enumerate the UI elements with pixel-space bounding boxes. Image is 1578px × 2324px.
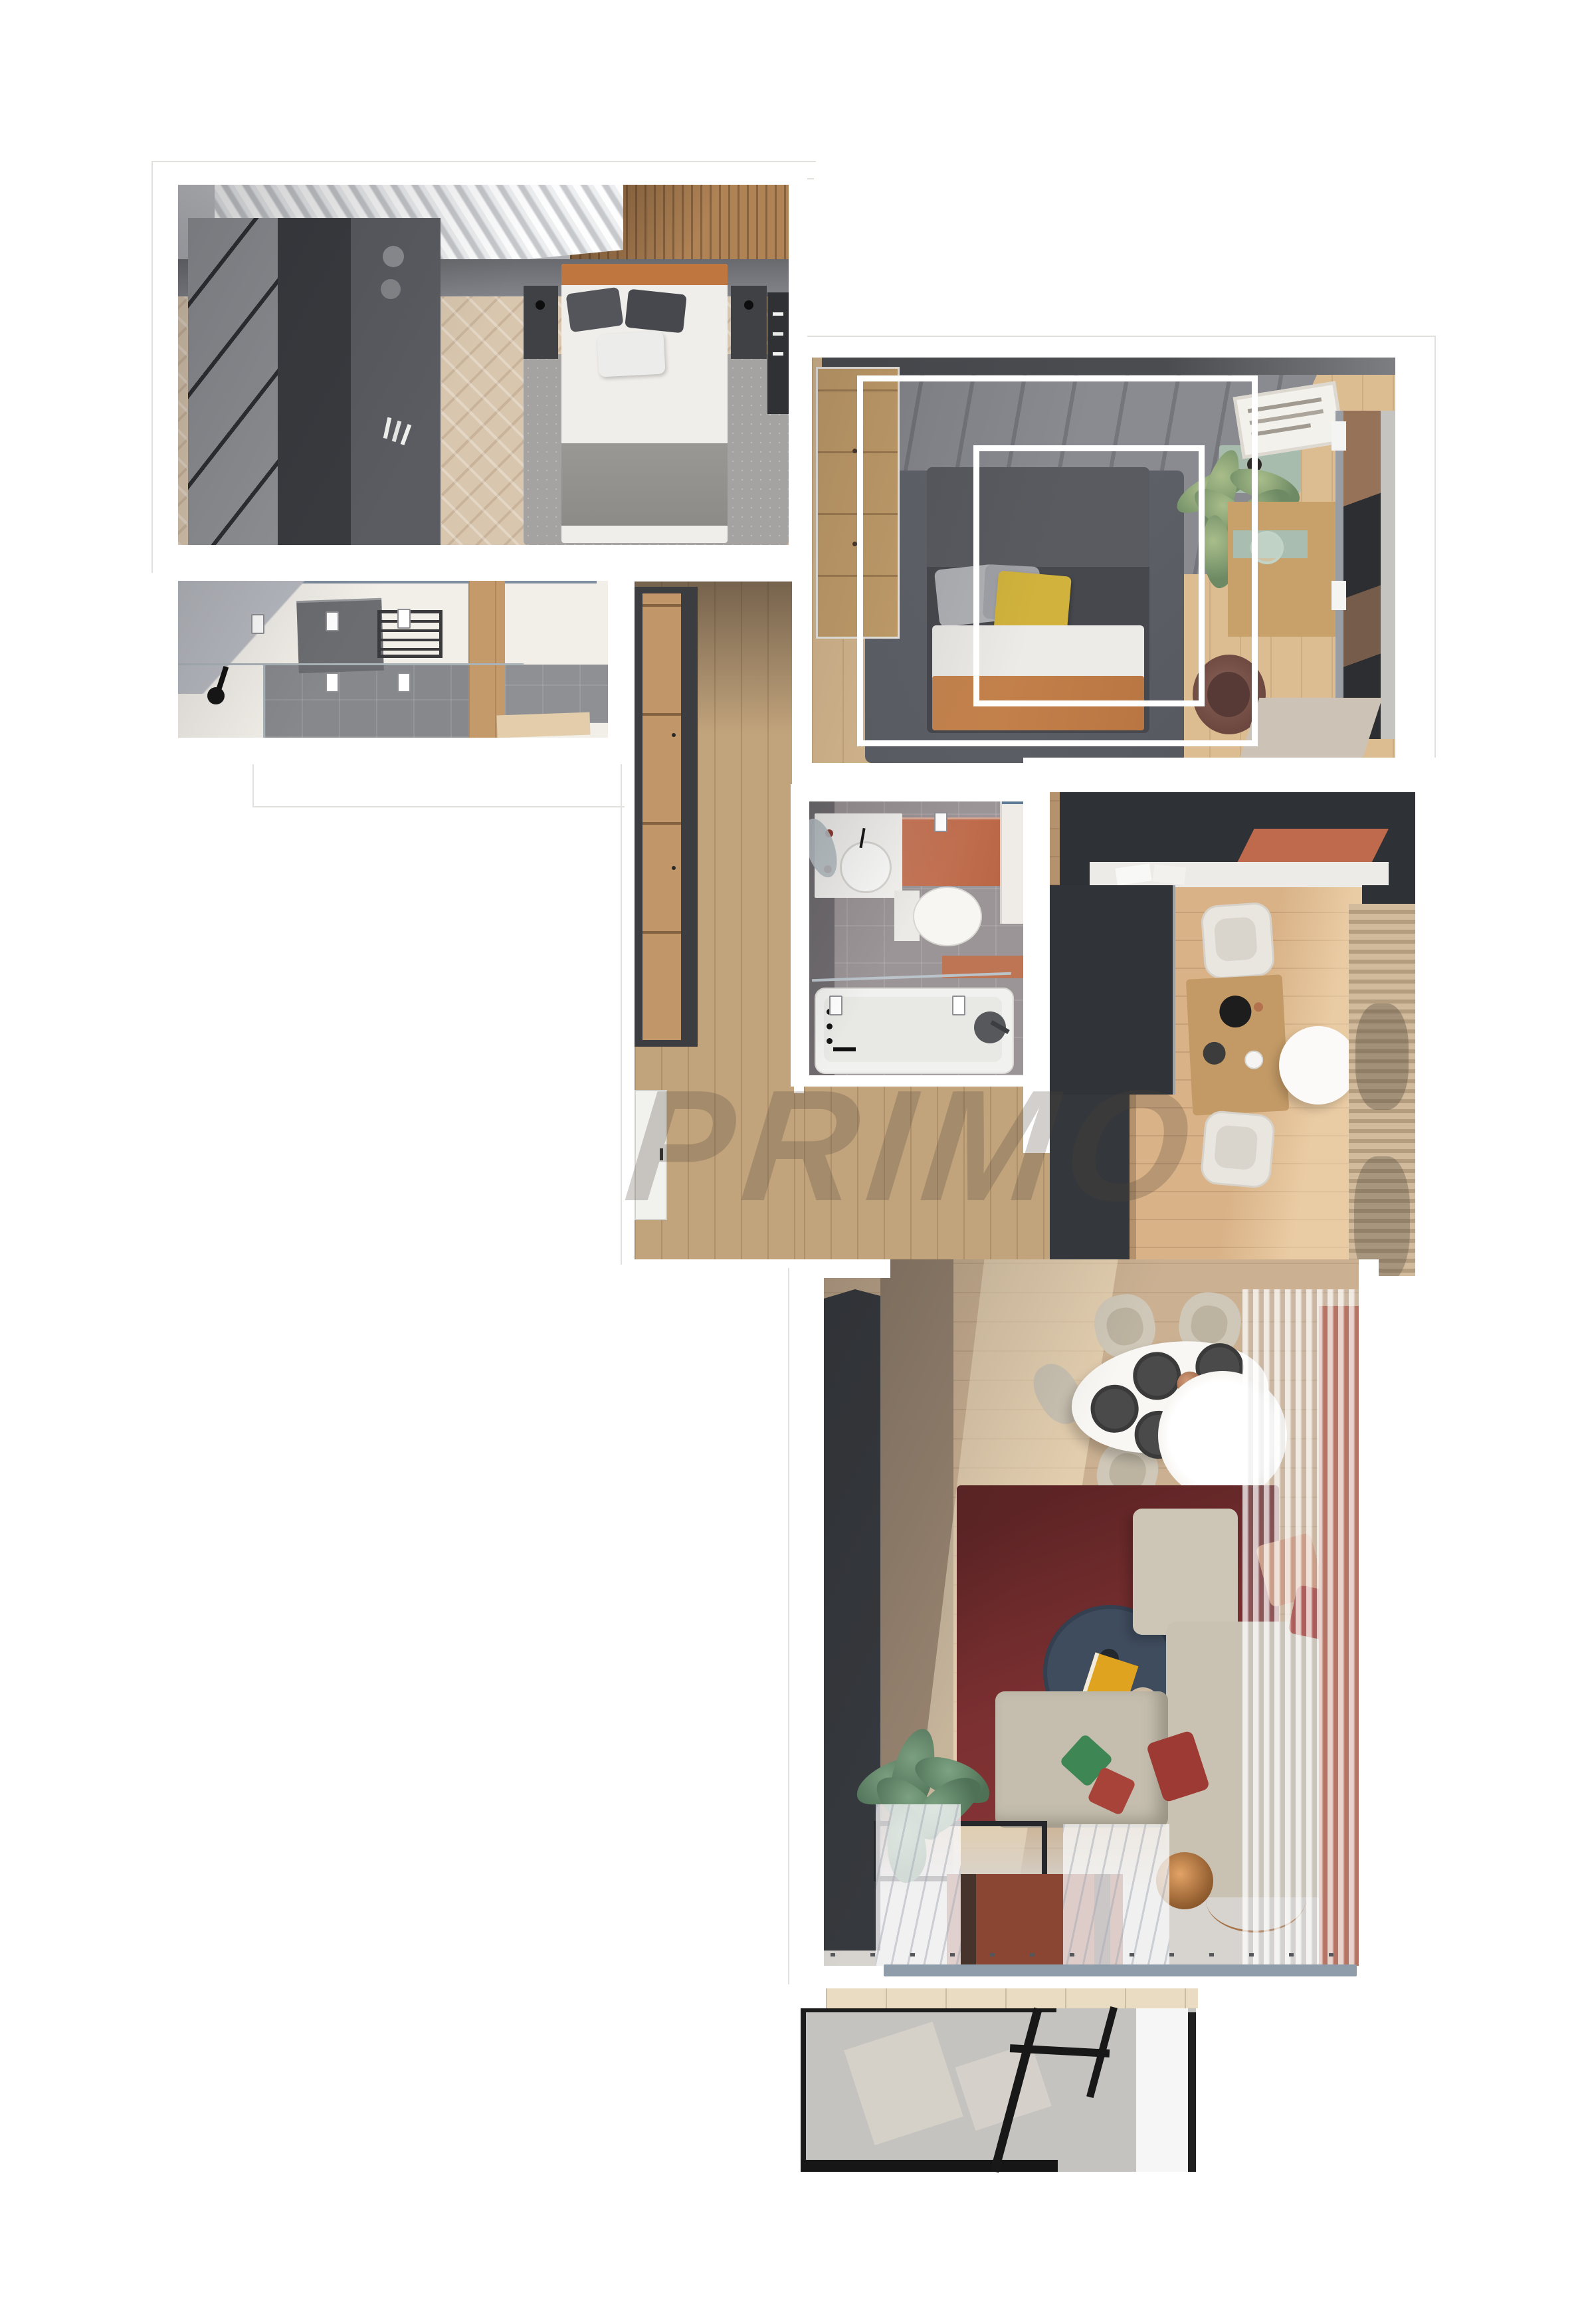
bed-1-pillow-white [597, 331, 665, 377]
black-bowl [1219, 995, 1252, 1028]
chair-seat [1104, 1305, 1146, 1348]
plan-outline-right-upper [1434, 336, 1436, 768]
curtain-hook-row [1130, 1953, 1355, 1956]
hall-extension-floor [804, 1087, 1050, 1276]
balcony-frame-right [1188, 2012, 1196, 2172]
bedroom-1-floor [178, 185, 789, 545]
window-sill [1381, 411, 1395, 739]
plan-outline-bedroom2-top [788, 336, 1436, 337]
dark-plate [1203, 1041, 1227, 1065]
shelf-books [401, 424, 412, 445]
window-glass-dark [1343, 411, 1381, 739]
wardrobe-shelf-column [351, 218, 441, 545]
desk-book [773, 352, 783, 356]
balcony-white-gap [1136, 2008, 1188, 2172]
plan-outline-step-v [252, 764, 254, 807]
ensuite-floor-marble [178, 581, 608, 738]
balcony-furniture-ghost [955, 2043, 1051, 2131]
balcony-frame-bottom [801, 2160, 1058, 2172]
door-handle [660, 1148, 663, 1160]
chair-seat [1214, 1124, 1258, 1170]
chair-seat [1188, 1303, 1230, 1346]
desk-with-books [767, 292, 789, 414]
plan-outline-living-left [788, 1268, 789, 1984]
window-mullion [1331, 581, 1346, 610]
wardrobe-closet [188, 218, 441, 545]
balcony-furniture-ghost [844, 2022, 963, 2145]
sofa-chaise [1133, 1509, 1238, 1635]
wardrobe-knob [852, 449, 857, 453]
bed-1-pillow-dark [625, 289, 687, 334]
bedroom-1 [159, 166, 807, 572]
cutting-board [1153, 865, 1186, 885]
living-room-floor [824, 1259, 1359, 1966]
kitchen-dining-table [1186, 974, 1290, 1115]
dark-plate [1088, 1382, 1141, 1435]
wardrobe-charcoal-panel [278, 218, 351, 545]
hall-extension-wall-stub [1023, 1087, 1050, 1153]
floor-plan-canvas: PRIMO [0, 0, 1578, 2324]
shelf-item-round [381, 279, 401, 299]
copper-deco [1254, 1002, 1264, 1012]
bed-1-headboard [561, 264, 728, 285]
bedroom-2 [792, 342, 1419, 784]
window-sill-bar [884, 1964, 1357, 1976]
plan-outline-corridor-left [621, 763, 622, 1265]
chair-seat [1214, 916, 1258, 962]
kitchen-floor [1050, 792, 1415, 1276]
living-room [804, 1259, 1379, 1987]
cutting-board [1115, 864, 1151, 886]
kitchen-counter-left [1050, 885, 1175, 1095]
white-frame-overlay-inner [973, 445, 1205, 706]
window-mullion [1331, 421, 1346, 451]
white-cup [1244, 1050, 1263, 1069]
rug-band [960, 1874, 976, 1966]
shelf-books [392, 421, 402, 442]
bedroom-2-lintel [822, 358, 1395, 375]
shelf-item-round [383, 246, 404, 267]
poster-text-line [1249, 409, 1324, 425]
balcony-frame-left [801, 2008, 806, 2172]
window-floor-mat [1239, 698, 1383, 761]
wardrobe-knob [852, 542, 857, 546]
poster-text-line [1251, 423, 1311, 437]
plan-outline-left [151, 161, 153, 573]
ensuite-bathroom [159, 572, 635, 764]
kitchen-counter-left-lower [1050, 1095, 1130, 1261]
nightstand-right [731, 286, 767, 359]
bed-1 [561, 264, 728, 543]
ensuite-light-shade [178, 581, 608, 738]
bed-1-gray-blanket [561, 443, 728, 526]
balcony-glass-balustrade [801, 2008, 1196, 2172]
plan-outline-top [151, 161, 816, 162]
sheer-curtain-right [1242, 1289, 1359, 1966]
sheer-curtain-bottom [876, 1804, 961, 1966]
wardrobe-gray-panel [188, 218, 278, 545]
nightstand-lamp [744, 300, 753, 310]
plan-outline-step-h [252, 806, 638, 807]
curtain-hook-row [831, 1953, 1110, 1956]
wardrobe-handle [672, 866, 676, 870]
window [1335, 411, 1395, 739]
wardrobe-handle [672, 733, 676, 737]
round-white-side-table [1279, 1026, 1357, 1105]
terracotta-backsplash [1236, 829, 1389, 865]
nightstand-left [524, 286, 558, 359]
kitchen-chair [1200, 901, 1275, 980]
balcony-frame-top [801, 2008, 1056, 2012]
hallway-wardrobe-wood-front [642, 593, 681, 1040]
desk-book [773, 312, 783, 316]
hallway-wardrobe [635, 587, 698, 1047]
family-bathroom [791, 784, 1043, 1087]
shelf-books [383, 417, 392, 439]
kitchen-chair [1199, 1110, 1276, 1190]
beige-curtains [1349, 904, 1415, 1276]
kitchen [1050, 758, 1445, 1276]
bed-1-pillow-dark [565, 287, 623, 333]
entrance-door [635, 1090, 667, 1220]
nightstand-lamp [536, 300, 545, 310]
balcony-floor-strip [826, 1988, 1198, 2008]
hallway-floor [635, 581, 804, 1259]
curtain-shadow-patch [1354, 1156, 1410, 1276]
kitchen-counter-top [1060, 792, 1415, 887]
bathroom-2-light-shade [809, 801, 1031, 1075]
desk-book [773, 332, 783, 336]
hallway [625, 572, 804, 1263]
bedroom-2-floor [812, 358, 1395, 763]
white-worktop [1090, 862, 1389, 887]
bathroom-2-floor [809, 801, 1031, 1075]
living-top-wall-stub [804, 1259, 890, 1278]
sheer-curtain-bottom [1063, 1824, 1169, 1966]
curtain-shadow-patch [1355, 1004, 1409, 1110]
